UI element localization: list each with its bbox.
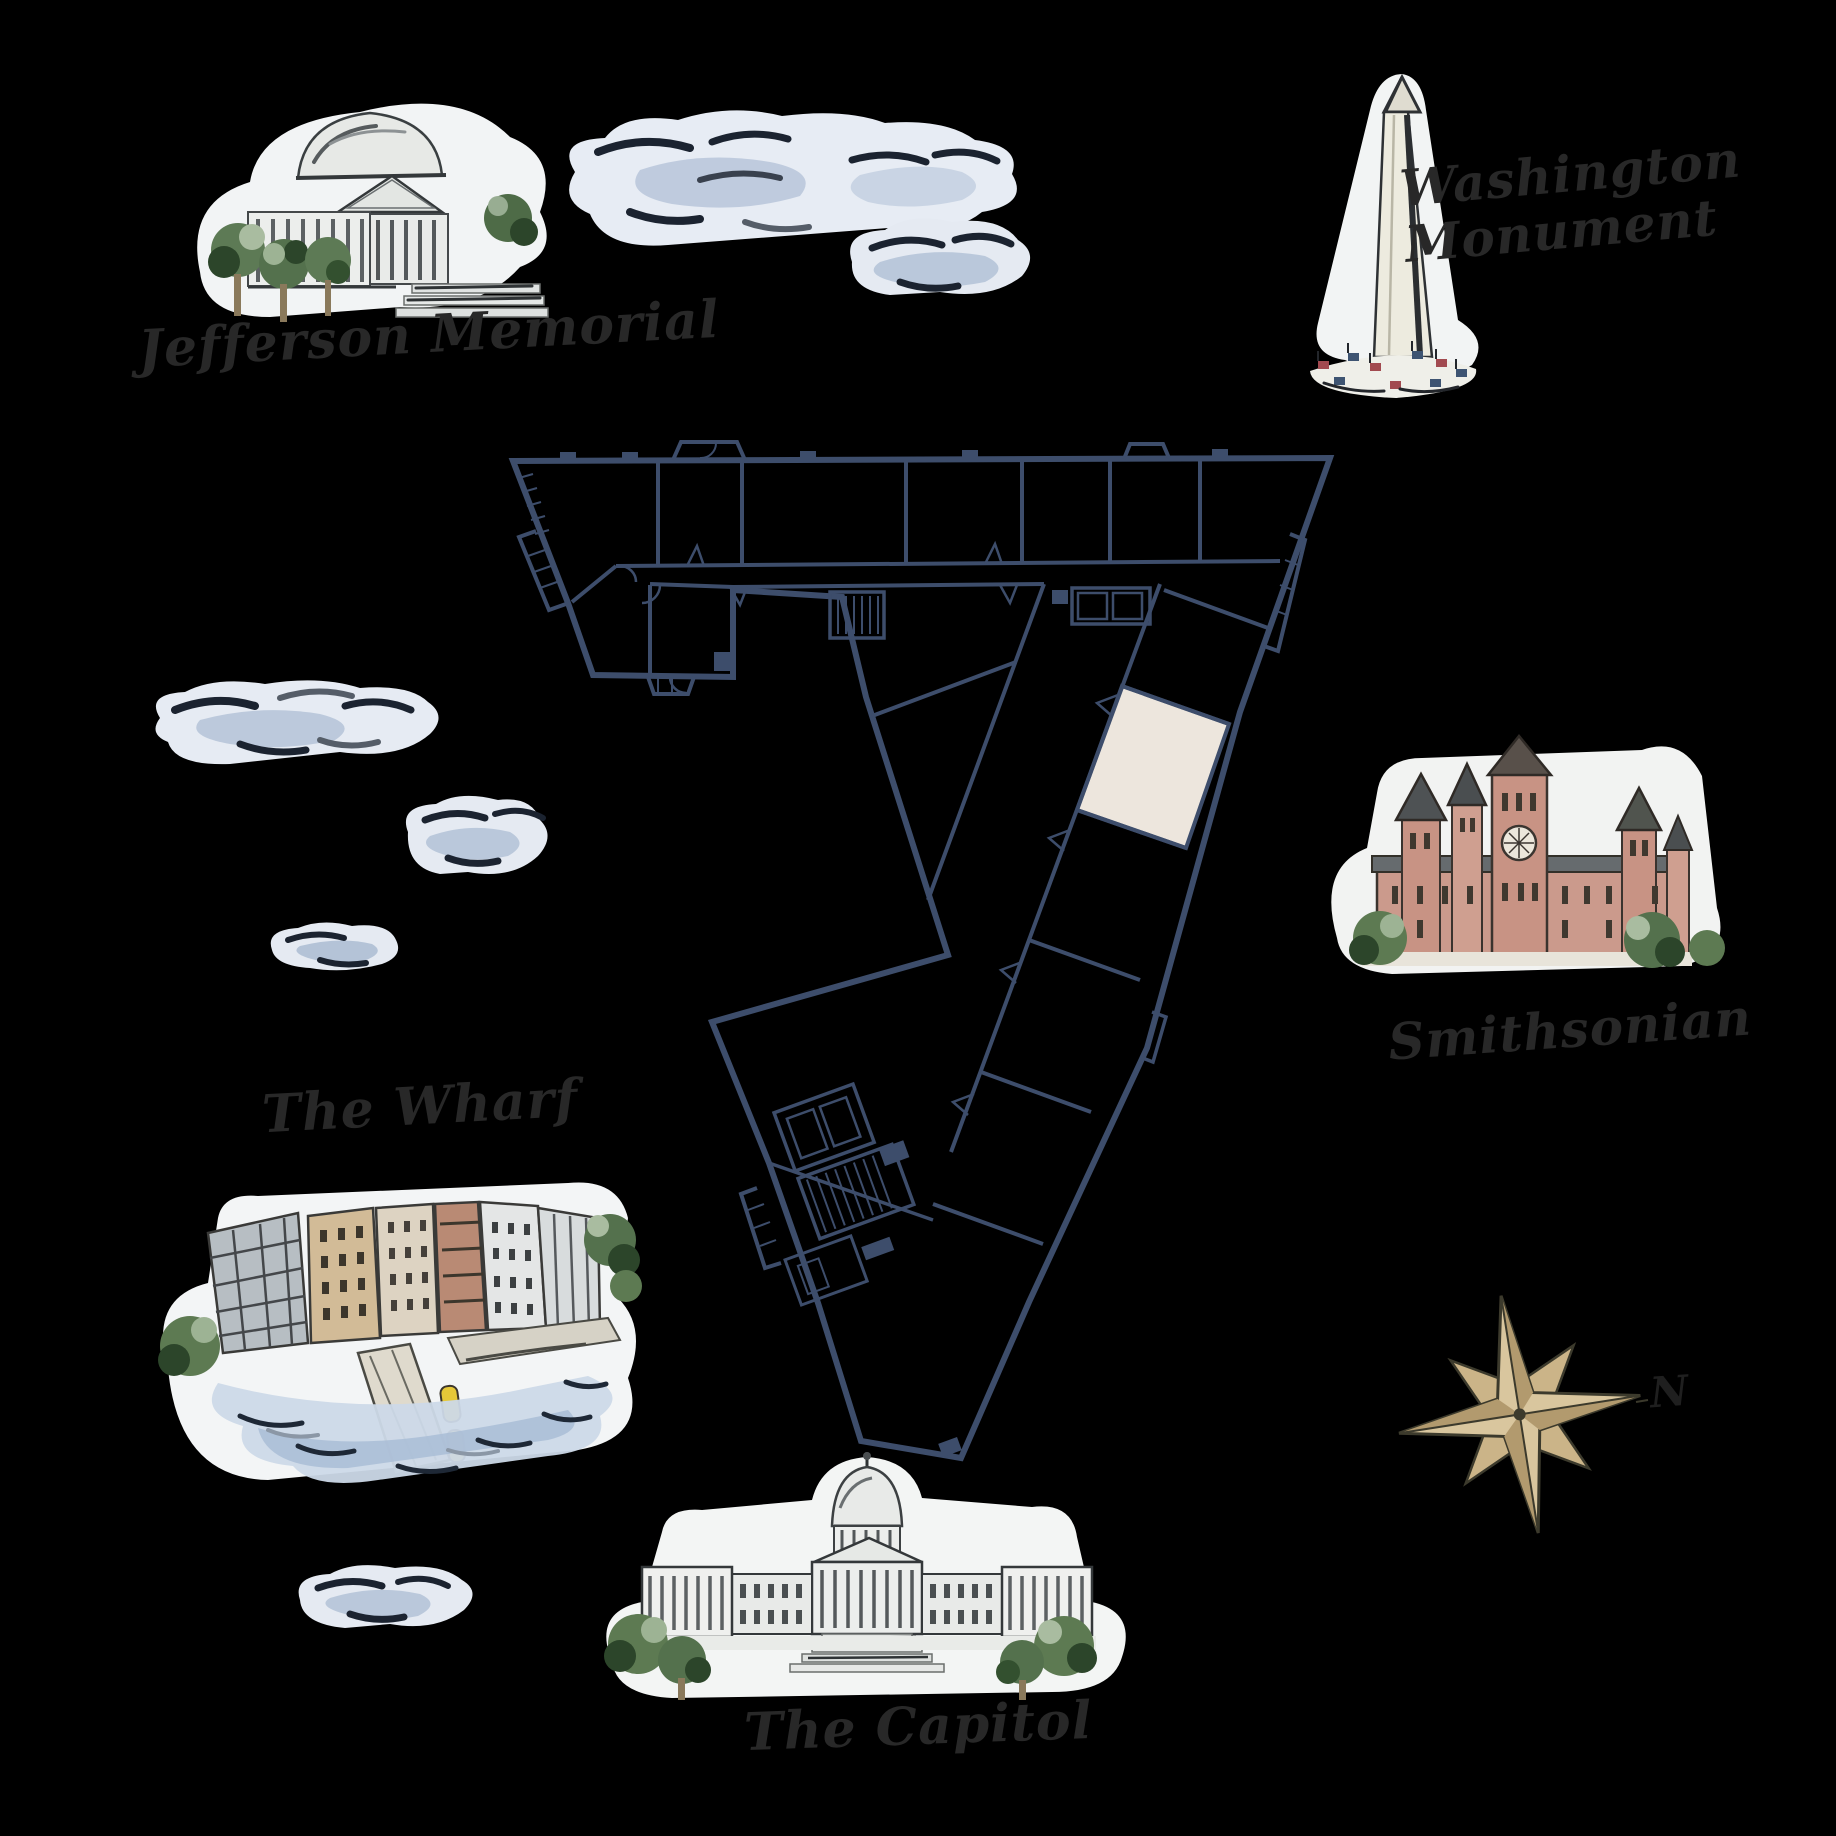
- compass-east-line: [1636, 1400, 1648, 1402]
- cloud-bottom-left: [299, 1565, 473, 1628]
- compass-rose-icon: [1384, 1280, 1655, 1548]
- the-capitol-label: The Capitol: [743, 1692, 1093, 1762]
- the-wharf-illustration: [158, 1182, 642, 1482]
- cloud-left-small: [271, 922, 398, 970]
- cloud-left-medium: [406, 796, 548, 874]
- illustrated-map: Jefferson Memorial Washington Monument S…: [0, 0, 1836, 1836]
- map-artwork: [0, 0, 1836, 1836]
- floor-plan: [513, 442, 1330, 1458]
- the-capitol-illustration: [604, 1452, 1126, 1700]
- jefferson-memorial-illustration: [197, 104, 548, 322]
- cloud-top-right: [850, 218, 1030, 295]
- compass-north-label: N: [1648, 1367, 1691, 1417]
- cloud-left-large: [156, 680, 439, 764]
- smithsonian-illustration: [1331, 736, 1725, 974]
